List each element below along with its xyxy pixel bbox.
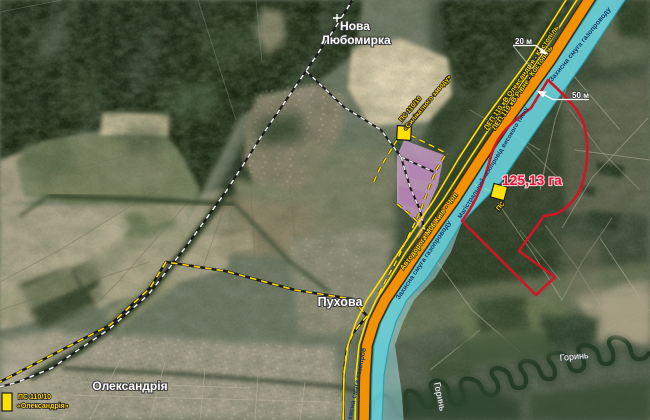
svg-text:50 м: 50 м — [572, 91, 589, 100]
svg-text:Пухова: Пухова — [318, 295, 364, 309]
svg-text:125,13 га: 125,13 га — [502, 173, 562, 188]
svg-text:Любомирка: Любомирка — [321, 33, 391, 47]
svg-text:ПС 110/10: ПС 110/10 — [18, 394, 51, 401]
svg-text:«Олександрія»: «Олександрія» — [17, 402, 69, 410]
svg-text:Олександрія: Олександрія — [92, 379, 167, 393]
svg-text:Нова: Нова — [340, 19, 370, 33]
svg-text:20 м: 20 м — [515, 37, 532, 46]
